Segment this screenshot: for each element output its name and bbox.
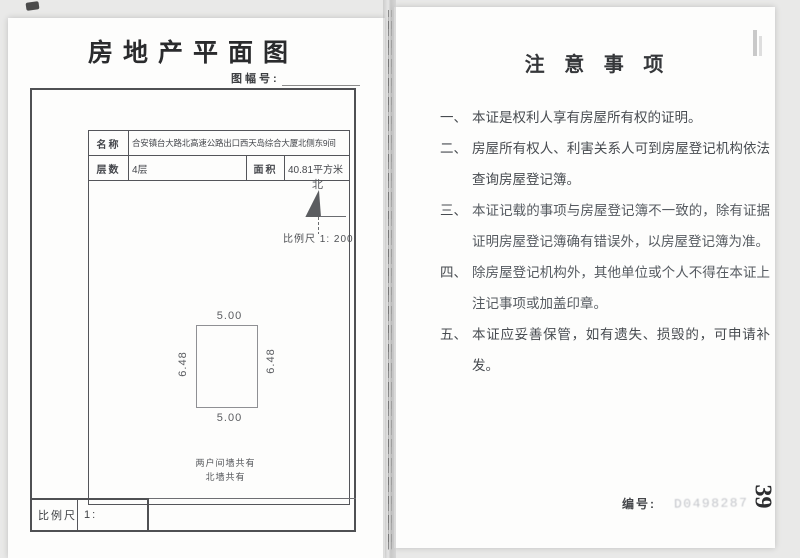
table-row-name: 名称 合安镇台大路北高速公路出口西天岛综合大厦北侧东9间: [89, 131, 350, 156]
notice-number: 二、: [440, 133, 472, 195]
dimension-width-bottom: 5.00: [207, 412, 252, 424]
notice-text: 除房屋登记机构外，其他单位或个人不得在本证上注记事项或加盖印章。: [472, 257, 770, 319]
scan-edge-mark: [759, 36, 762, 56]
notice-item-2: 二、 房屋所有权人、利害关系人可到房屋登记机构依法查询房屋登记簿。: [440, 133, 770, 195]
wall-ownership-notes: 两户间墙共有 北墙共有: [168, 456, 283, 484]
binding-seam: [383, 0, 396, 558]
notice-item-4: 四、 除房屋登记机构外，其他单位或个人不得在本证上注记事项或加盖印章。: [440, 257, 770, 319]
sheet-number-field: 图幅号:: [231, 70, 360, 86]
wall-note-line1: 两户间墙共有: [168, 456, 283, 470]
wall-note-line2: 北墙共有: [168, 470, 283, 484]
scale-box: 比例尺 1:: [30, 498, 149, 532]
scale-box-extension-line: [149, 498, 356, 499]
scale-box-value: 1:: [78, 500, 97, 530]
serial-number-field: 编号: D0498287: [622, 495, 748, 512]
notice-text: 本证是权利人享有房屋所有权的证明。: [472, 102, 770, 133]
notice-number: 三、: [440, 195, 472, 257]
scan-edge-mark: [753, 30, 757, 56]
floors-header-cell: 层数: [89, 156, 129, 181]
seam-line: [388, 10, 389, 550]
name-header-cell: 名称: [89, 131, 129, 156]
floors-value-cell: 4层: [129, 156, 247, 181]
serial-number-label: 编号:: [622, 495, 656, 512]
dimension-height-right: 6.48: [265, 340, 277, 382]
notice-item-3: 三、 本证记载的事项与房屋登记簿不一致的，除有证据证明房屋登记簿确有错误外，以房…: [440, 195, 770, 257]
notice-item-5: 五、 本证应妥善保管，如有遗失、损毁的，可申请补发。: [440, 319, 770, 381]
page-number: 39: [749, 485, 776, 509]
north-arrow-triangle: [304, 190, 321, 217]
dimension-width-top: 5.00: [207, 310, 252, 322]
notice-text: 房屋所有权人、利害关系人可到房屋登记机构依法查询房屋登记簿。: [472, 133, 770, 195]
sheet-number-label: 图幅号:: [231, 70, 280, 86]
dimension-height-left: 6.48: [177, 343, 189, 385]
north-label: 北: [312, 176, 324, 192]
notice-item-1: 一、 本证是权利人享有房屋所有权的证明。: [440, 102, 770, 133]
scale-box-label: 比例尺: [32, 500, 78, 530]
serial-number-stamp: D0498287: [674, 495, 749, 511]
seam-line: [391, 10, 392, 550]
north-arrow-baseline: [320, 216, 346, 217]
notice-number: 五、: [440, 319, 472, 381]
scanned-document: 房地产平面图 图幅号: 名称 合安镇台大路北高速公路出口西天岛综合大厦北侧东9间…: [0, 0, 800, 558]
notice-number: 四、: [440, 257, 472, 319]
name-value-cell: 合安镇台大路北高速公路出口西天岛综合大厦北侧东9间: [129, 131, 350, 156]
plan-scale-note: 比例尺 1: 200: [283, 230, 354, 245]
room-outline: [196, 325, 258, 408]
scan-smudge: [26, 1, 40, 11]
property-info-table: 名称 合安镇台大路北高速公路出口西天岛综合大厦北侧东9间 层数 4层 面积 40…: [88, 130, 350, 181]
page-title-floor-plan: 房地产平面图: [88, 33, 308, 69]
page-title-notices: 注 意 事 项: [505, 48, 690, 77]
notice-list: 一、 本证是权利人享有房屋所有权的证明。 二、 房屋所有权人、利害关系人可到房屋…: [440, 102, 770, 381]
notice-number: 一、: [440, 102, 472, 133]
notice-text: 本证记载的事项与房屋登记簿不一致的，除有证据证明房屋登记簿确有错误外，以房屋登记…: [472, 195, 770, 257]
notice-text: 本证应妥善保管，如有遗失、损毁的，可申请补发。: [472, 319, 770, 381]
sheet-number-blank-line: [282, 73, 360, 86]
